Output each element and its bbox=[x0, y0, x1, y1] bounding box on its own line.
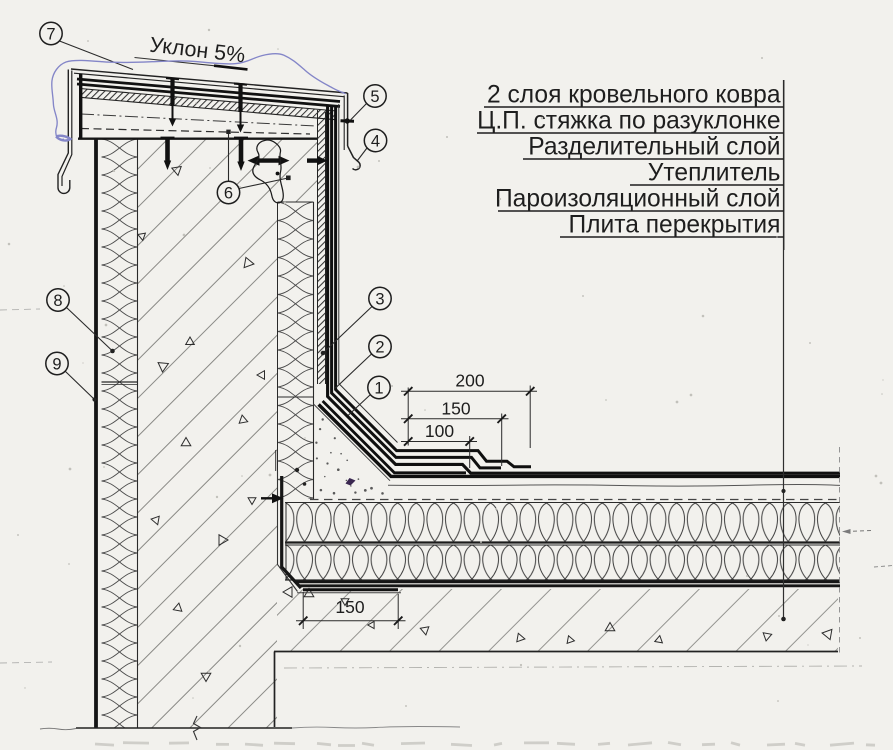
svg-text:6: 6 bbox=[224, 184, 233, 202]
svg-text:2 слоя кровельного ковра: 2 слоя кровельного ковра bbox=[487, 82, 781, 109]
svg-text:2: 2 bbox=[375, 338, 384, 356]
svg-text:Пароизоляционный слой: Пароизоляционный слой bbox=[495, 186, 781, 213]
svg-text:4: 4 bbox=[371, 132, 380, 150]
svg-text:Разделительный слой: Разделительный слой bbox=[528, 134, 780, 161]
svg-text:5: 5 bbox=[370, 88, 379, 106]
svg-text:Плита перекрытия: Плита перекрытия bbox=[568, 212, 780, 239]
svg-text:Ц.П. стяжка по разуклонке: Ц.П. стяжка по разуклонке bbox=[477, 108, 780, 135]
svg-text:100: 100 bbox=[425, 421, 454, 441]
svg-text:1: 1 bbox=[374, 379, 383, 397]
svg-text:200: 200 bbox=[455, 371, 484, 391]
svg-text:9: 9 bbox=[52, 355, 61, 373]
svg-text:Утеплитель: Утеплитель bbox=[648, 160, 781, 187]
svg-text:150: 150 bbox=[335, 597, 364, 617]
svg-text:3: 3 bbox=[375, 290, 384, 308]
svg-text:150: 150 bbox=[441, 399, 470, 419]
svg-text:7: 7 bbox=[46, 25, 55, 43]
svg-text:8: 8 bbox=[53, 292, 62, 310]
